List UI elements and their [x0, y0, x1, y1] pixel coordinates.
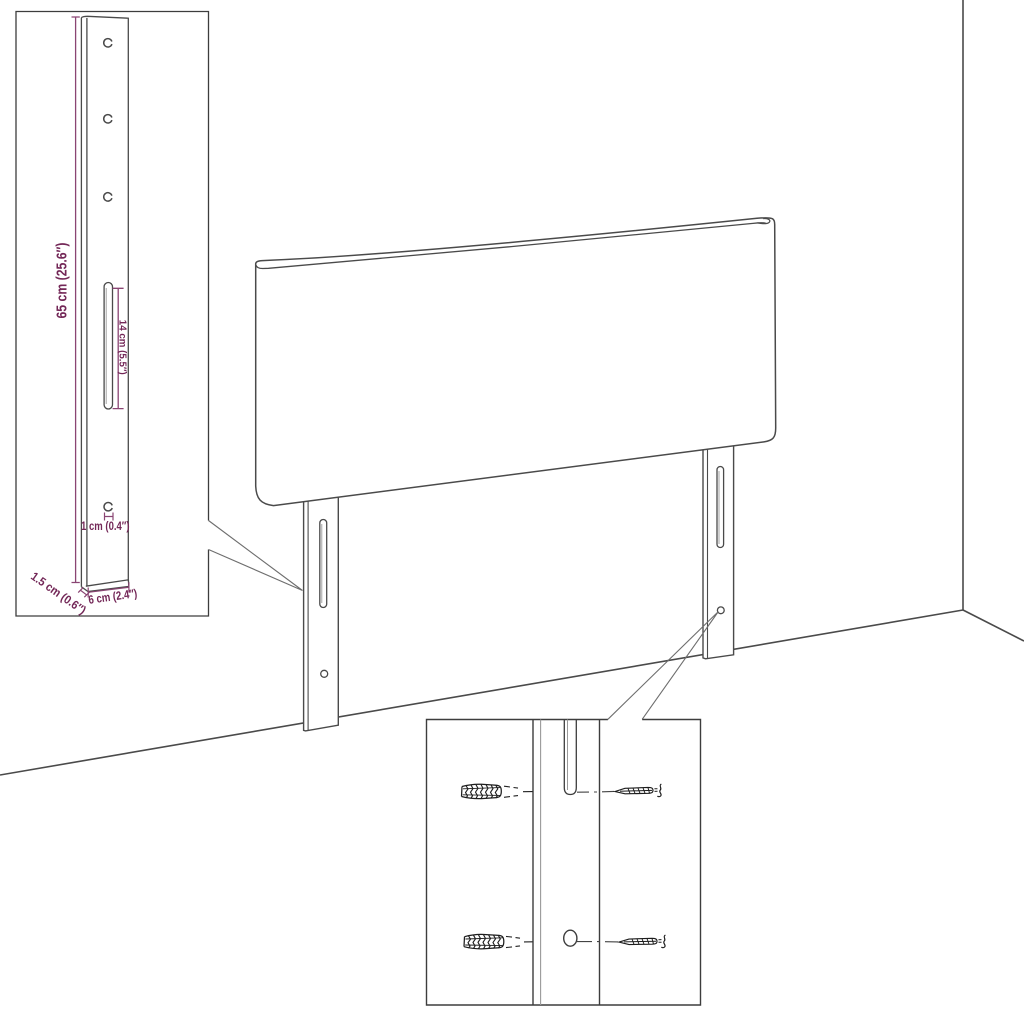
svg-text:14 cm (5.5″): 14 cm (5.5″) — [117, 320, 129, 375]
svg-text:65 cm (25.6″): 65 cm (25.6″) — [54, 243, 71, 319]
svg-text:1 cm (0.4″): 1 cm (0.4″) — [81, 519, 130, 533]
